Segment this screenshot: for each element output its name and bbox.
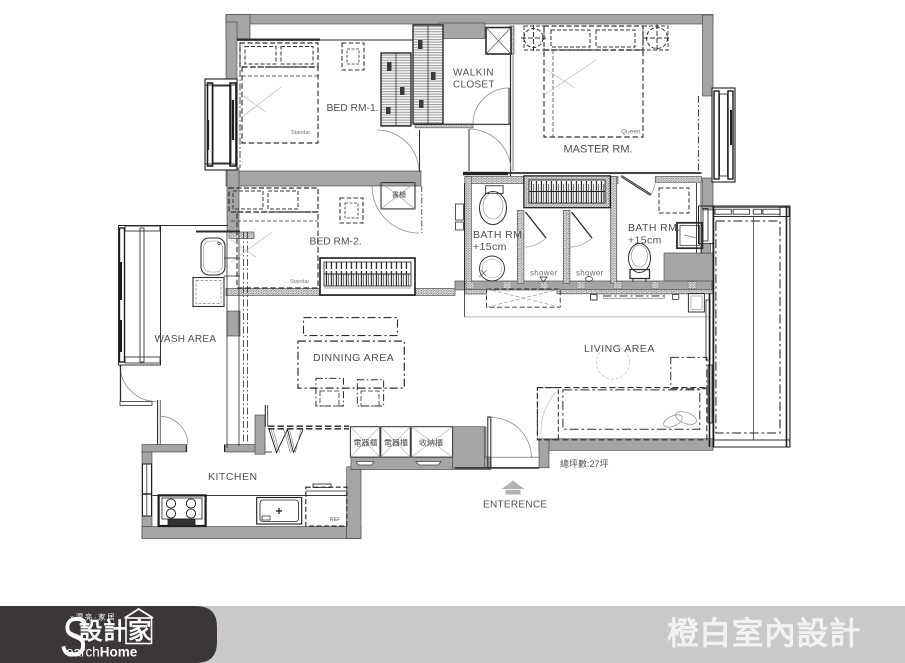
svg-text:»漂亮·家居: »漂亮·家居 bbox=[70, 612, 116, 622]
svg-text:Standar: Standar bbox=[290, 279, 309, 285]
svg-text:WASH AREA: WASH AREA bbox=[155, 334, 217, 345]
svg-text:DINNING AREA: DINNING AREA bbox=[313, 352, 394, 364]
svg-text:REF: REF bbox=[330, 517, 340, 523]
svg-text:shower: shower bbox=[576, 269, 604, 278]
svg-text:WALKIN: WALKIN bbox=[453, 68, 494, 79]
svg-text:BED RM-1.: BED RM-1. bbox=[327, 103, 379, 114]
svg-text:earchHome: earchHome bbox=[66, 645, 138, 660]
svg-text:橙白室內設計: 橙白室內設計 bbox=[667, 615, 861, 651]
svg-text:ENTERENCE: ENTERENCE bbox=[483, 500, 547, 511]
svg-text:KITCHEN: KITCHEN bbox=[208, 471, 258, 483]
svg-text:BED RM-2.: BED RM-2. bbox=[310, 237, 362, 248]
svg-text:+15cm: +15cm bbox=[628, 235, 662, 247]
svg-text:書櫃: 書櫃 bbox=[392, 190, 406, 199]
svg-text:MASTER RM.: MASTER RM. bbox=[564, 144, 633, 156]
svg-text:家: 家 bbox=[128, 617, 152, 644]
svg-text:Standar: Standar bbox=[291, 130, 310, 136]
svg-text:CLOSET: CLOSET bbox=[453, 80, 495, 91]
svg-text:電器櫃: 電器櫃 bbox=[384, 438, 408, 448]
svg-text:收納櫃: 收納櫃 bbox=[419, 438, 443, 448]
svg-text:Queen: Queen bbox=[621, 129, 641, 136]
svg-text:BATH RM.: BATH RM. bbox=[628, 222, 681, 234]
svg-text:LIVING AREA: LIVING AREA bbox=[584, 343, 655, 355]
svg-text:BATH RM.: BATH RM. bbox=[473, 229, 526, 241]
svg-text:總坪數:27坪: 總坪數:27坪 bbox=[560, 458, 609, 469]
svg-text:+15cm: +15cm bbox=[473, 241, 507, 253]
svg-text:shower: shower bbox=[530, 269, 558, 278]
svg-text:電器櫃: 電器櫃 bbox=[354, 438, 378, 448]
